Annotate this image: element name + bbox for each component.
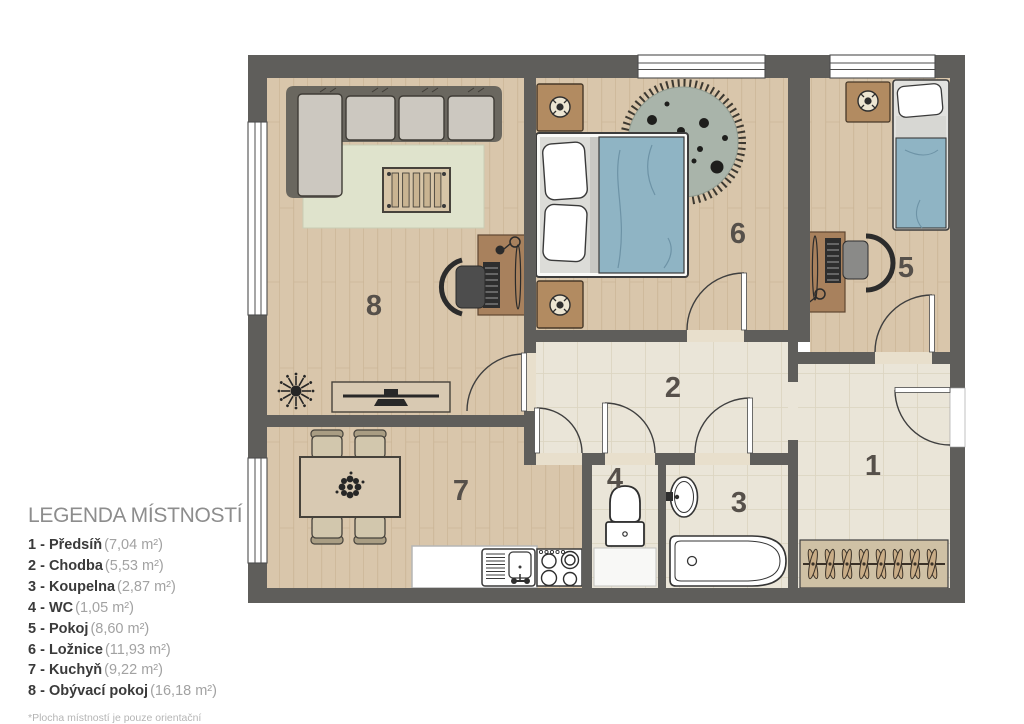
double-bed: [536, 133, 688, 277]
tv-stand: [332, 382, 450, 412]
stove: [537, 549, 582, 586]
room-number-hall: 1: [865, 450, 881, 482]
dining-chair: [354, 516, 386, 544]
legend: LEGENDA MÍSTNOSTÍ 1 - Předsíň(7,04 m²) 2…: [28, 504, 268, 724]
room-number-living-room: 8: [366, 290, 382, 322]
legend-item-label: 3 - Koupelna: [28, 579, 115, 595]
legend-item-area: (7,04 m²): [104, 537, 163, 553]
legend-item: 6 - Ložnice(11,93 m²): [28, 640, 268, 661]
nightstand: [537, 84, 583, 131]
room-number-bathroom: 3: [731, 487, 747, 519]
legend-item-area: (2,87 m²): [117, 579, 176, 595]
legend-item: 7 - Kuchyň(9,22 m²): [28, 660, 268, 681]
legend-item: 2 - Chodba(5,53 m²): [28, 556, 268, 577]
legend-item: 1 - Předsíň(7,04 m²): [28, 535, 268, 556]
dining-chair: [354, 430, 386, 458]
room-number-kitchen: 7: [453, 475, 469, 507]
dining-chair: [311, 430, 343, 458]
legend-item-area: (5,53 m²): [105, 558, 164, 574]
wardrobe: [800, 540, 948, 588]
room-number-room: 5: [898, 252, 914, 284]
dining-chair: [311, 516, 343, 544]
blanket: [896, 138, 946, 228]
pillow: [543, 204, 588, 262]
wc-cabinet: [594, 548, 656, 586]
legend-item-area: (16,18 m²): [150, 683, 217, 699]
pillow: [897, 83, 944, 118]
keyboard: [483, 262, 500, 308]
room-number-corridor: 2: [665, 372, 681, 404]
pillow: [542, 142, 588, 201]
legend-item: 3 - Koupelna(2,87 m²): [28, 577, 268, 598]
window: [638, 55, 765, 78]
legend-footnote: *Plocha místností je pouze orientační: [28, 712, 268, 724]
legend-item: 5 - Pokoj(8,60 m²): [28, 619, 268, 640]
legend-item-label: 8 - Obývací pokoj: [28, 683, 148, 699]
keyboard: [825, 238, 841, 283]
nightstand: [846, 82, 890, 122]
legend-items: 1 - Předsíň(7,04 m²) 2 - Chodba(5,53 m²)…: [28, 535, 268, 702]
legend-title: LEGENDA MÍSTNOSTÍ: [28, 504, 268, 528]
legend-item-area: (9,22 m²): [104, 662, 163, 678]
legend-item-label: 1 - Předsíň: [28, 537, 102, 553]
legend-item-area: (11,93 m²): [105, 642, 171, 658]
legend-item-label: 2 - Chodba: [28, 558, 103, 574]
legend-item: 4 - WC(1,05 m²): [28, 598, 268, 619]
table-lamp-icon: [550, 295, 570, 315]
window: [248, 122, 267, 315]
single-bed: [893, 80, 949, 230]
legend-item-area: (8,60 m²): [90, 621, 149, 637]
table-lamp-icon: [858, 91, 878, 111]
room-number-wc: 4: [607, 463, 623, 495]
coffee-table: [383, 168, 450, 212]
kitchen-sink: [482, 549, 535, 586]
legend-item-area: (1,05 m²): [75, 600, 134, 616]
toilet: [606, 486, 644, 546]
legend-item-label: 5 - Pokoj: [28, 621, 88, 637]
window: [830, 55, 935, 78]
legend-item: 8 - Obývací pokoj(16,18 m²): [28, 681, 268, 702]
legend-item-label: 7 - Kuchyň: [28, 662, 102, 678]
bathtub: [670, 536, 786, 586]
legend-item-label: 4 - WC: [28, 600, 73, 616]
opening-corridor-hall: [788, 382, 798, 440]
kitchen-counter: [412, 546, 582, 588]
legend-item-label: 6 - Ložnice: [28, 642, 103, 658]
table-lamp-icon: [550, 97, 570, 117]
room-number-bedroom: 6: [730, 218, 746, 250]
nightstand: [537, 281, 583, 328]
dining-table: [300, 457, 400, 517]
